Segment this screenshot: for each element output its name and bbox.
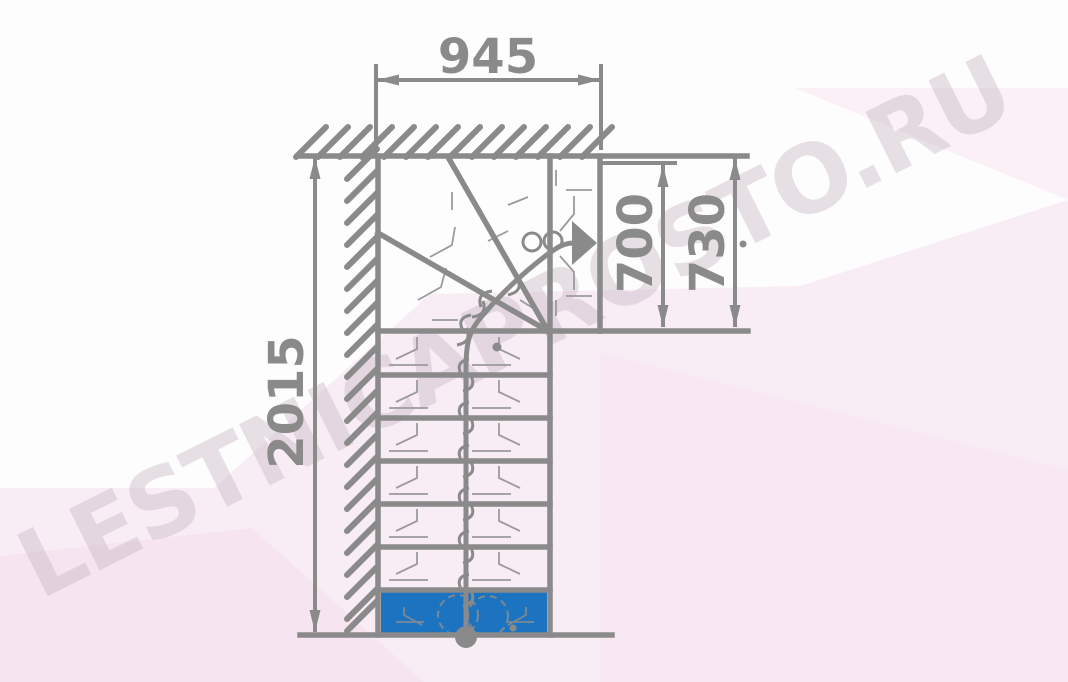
dimension-label-flight-width: 700 (608, 193, 664, 293)
stair-plan-canvas: LESTNICAPROSTO.RU (0, 0, 1068, 682)
small-dot (740, 241, 747, 248)
small-dot (510, 625, 517, 632)
stair-plan-drawing: LESTNICAPROSTO.RU (0, 0, 1068, 682)
dimension-label-total-width: 945 (438, 29, 538, 85)
small-dot (493, 343, 502, 352)
dimension-label-opening-width: 730 (680, 193, 736, 293)
top-wall-hatch (296, 127, 612, 157)
walk-line-start-circle (455, 626, 477, 648)
dimension-label-total-length: 2015 (259, 335, 315, 469)
